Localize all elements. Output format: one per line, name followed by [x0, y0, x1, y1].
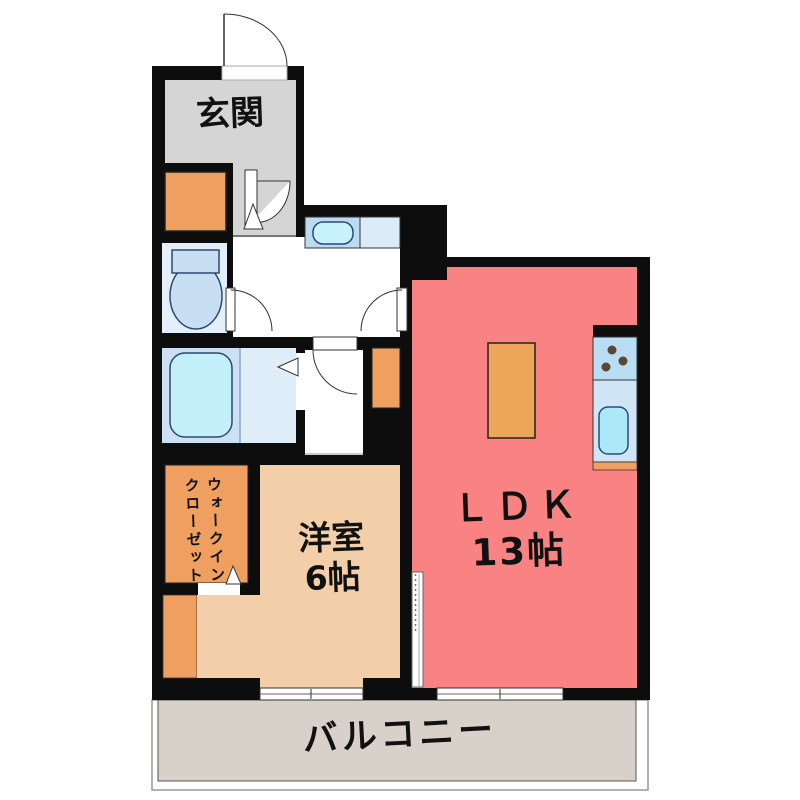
floor-plan-drawing [0, 0, 800, 800]
bedroom-door-leaf [313, 337, 357, 350]
toilet-door-leaf [226, 288, 235, 331]
ldk-label-name: ＬＤＫ [428, 481, 605, 532]
kitchen-wall-stub [593, 325, 637, 337]
entrance-threshold [222, 66, 287, 80]
hall-closet [372, 348, 400, 408]
kitchen-sink [599, 407, 628, 454]
washbasin-sink [313, 222, 353, 244]
stove-burner-2 [619, 357, 628, 366]
stove-burner-1 [608, 346, 617, 355]
ldk-label-size: 13帖 [430, 526, 607, 577]
bedroom-label: 洋室 6帖 [261, 516, 404, 601]
kitchen-base-strip [593, 462, 637, 470]
genkan-label: 玄関 [161, 92, 298, 138]
hallway-lower [305, 350, 363, 455]
sliding-door [412, 572, 423, 687]
ldk-label: ＬＤＫ 13帖 [428, 481, 607, 577]
wic-label-line2: クローゼット [182, 470, 205, 593]
window-bedroom [260, 688, 363, 700]
dining-table [488, 343, 535, 438]
bedroom-label-name: 洋室 [261, 516, 402, 561]
bedroom-label-size: 6帖 [262, 556, 403, 601]
bedroom-floor-extension [197, 595, 260, 678]
hallway-upper [233, 237, 400, 337]
stove-burner-3 [602, 363, 611, 372]
laundry-space [360, 217, 400, 248]
walk-in-closet-label: ウォークイン クローゼット [182, 469, 227, 592]
shoe-cabinet [165, 172, 226, 231]
ldk-door-leaf [397, 288, 407, 331]
bathtub [170, 353, 232, 437]
floor-plan: 玄関 ＬＤＫ 13帖 洋室 6帖 ウォークイン クローゼット バルコニー [0, 0, 800, 800]
bedroom-window-sill [260, 678, 363, 688]
closet-lower [163, 595, 197, 678]
kitchen-stove-counter [593, 337, 637, 380]
toilet-tank [172, 250, 219, 273]
window-ldk [437, 688, 563, 700]
